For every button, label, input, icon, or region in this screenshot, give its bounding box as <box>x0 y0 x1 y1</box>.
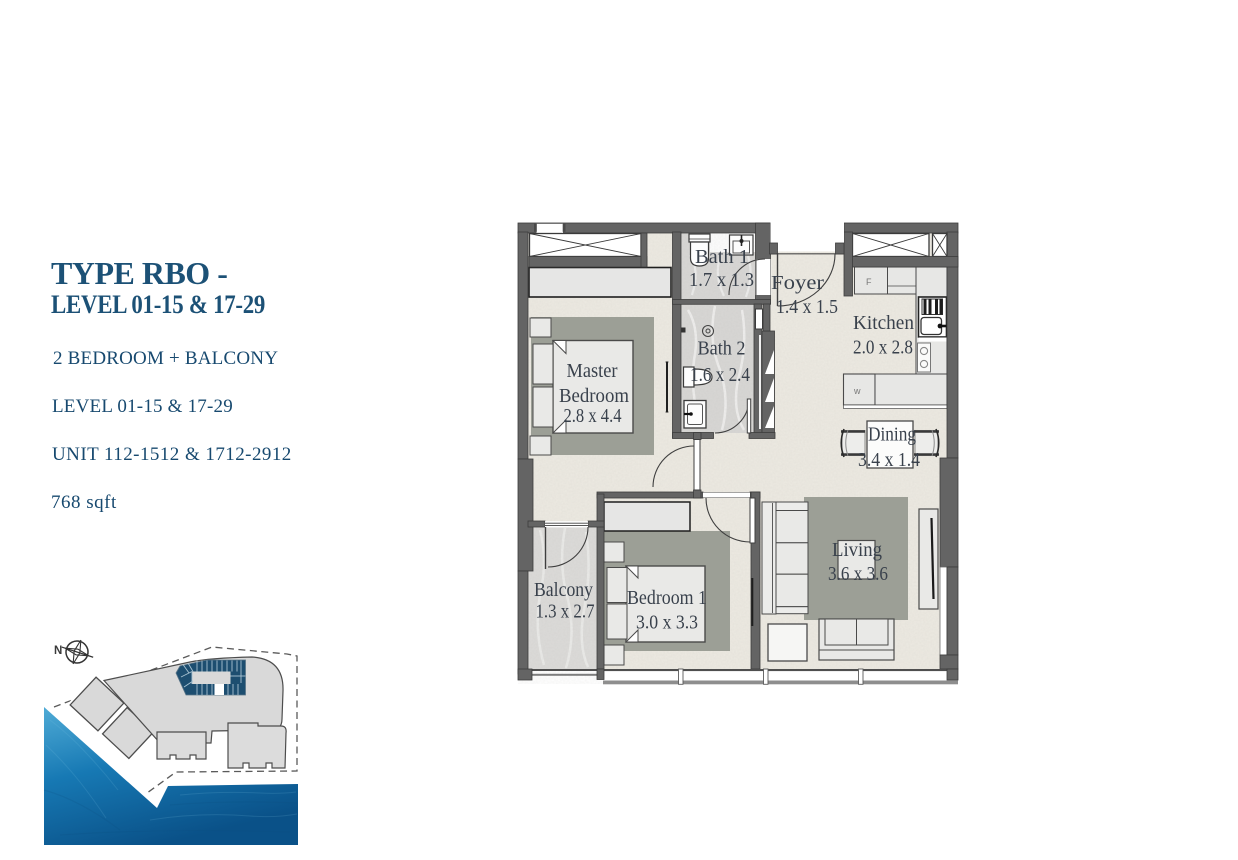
svg-text:1.4 x 1.5: 1.4 x 1.5 <box>776 297 838 318</box>
svg-text:TYPE RBO -: TYPE RBO - <box>51 255 227 291</box>
svg-text:768 sqft: 768 sqft <box>51 492 117 513</box>
svg-text:1.6 x 2.4: 1.6 x 2.4 <box>690 365 750 386</box>
svg-text:Bedroom: Bedroom <box>559 386 629 407</box>
svg-text:2 BEDROOM + BALCONY: 2 BEDROOM + BALCONY <box>53 348 278 369</box>
svg-text:3.6 x 3.6: 3.6 x 3.6 <box>828 564 888 585</box>
svg-text:LEVEL 01-15 & 17-29: LEVEL 01-15 & 17-29 <box>51 291 265 320</box>
svg-text:Living: Living <box>832 540 882 561</box>
svg-text:F: F <box>866 277 872 287</box>
svg-text:1.3 x 2.7: 1.3 x 2.7 <box>536 602 595 623</box>
svg-text:Balcony: Balcony <box>534 580 593 601</box>
svg-text:LEVEL 01-15 & 17-29: LEVEL 01-15 & 17-29 <box>52 396 233 417</box>
svg-text:w: w <box>853 386 861 396</box>
svg-text:1.7 x 1.3: 1.7 x 1.3 <box>689 270 754 291</box>
svg-text:3.0 x 3.3: 3.0 x 3.3 <box>636 613 698 634</box>
svg-text:Kitchen: Kitchen <box>853 313 914 334</box>
svg-text:N: N <box>54 645 62 657</box>
svg-text:UNIT 112-1512 & 1712-2912: UNIT 112-1512 & 1712-2912 <box>52 444 292 465</box>
svg-text:Foyer: Foyer <box>771 273 825 294</box>
svg-text:Dining: Dining <box>868 425 916 446</box>
svg-text:Bath 1: Bath 1 <box>695 247 749 268</box>
svg-text:Bedroom 1: Bedroom 1 <box>627 588 707 609</box>
svg-text:3.4 x 1.4: 3.4 x 1.4 <box>858 450 920 471</box>
svg-text:2.8 x 4.4: 2.8 x 4.4 <box>564 406 622 427</box>
svg-text:Master: Master <box>567 361 618 382</box>
svg-text:2.0 x 2.8: 2.0 x 2.8 <box>853 338 913 359</box>
svg-text:Bath 2: Bath 2 <box>698 339 746 360</box>
